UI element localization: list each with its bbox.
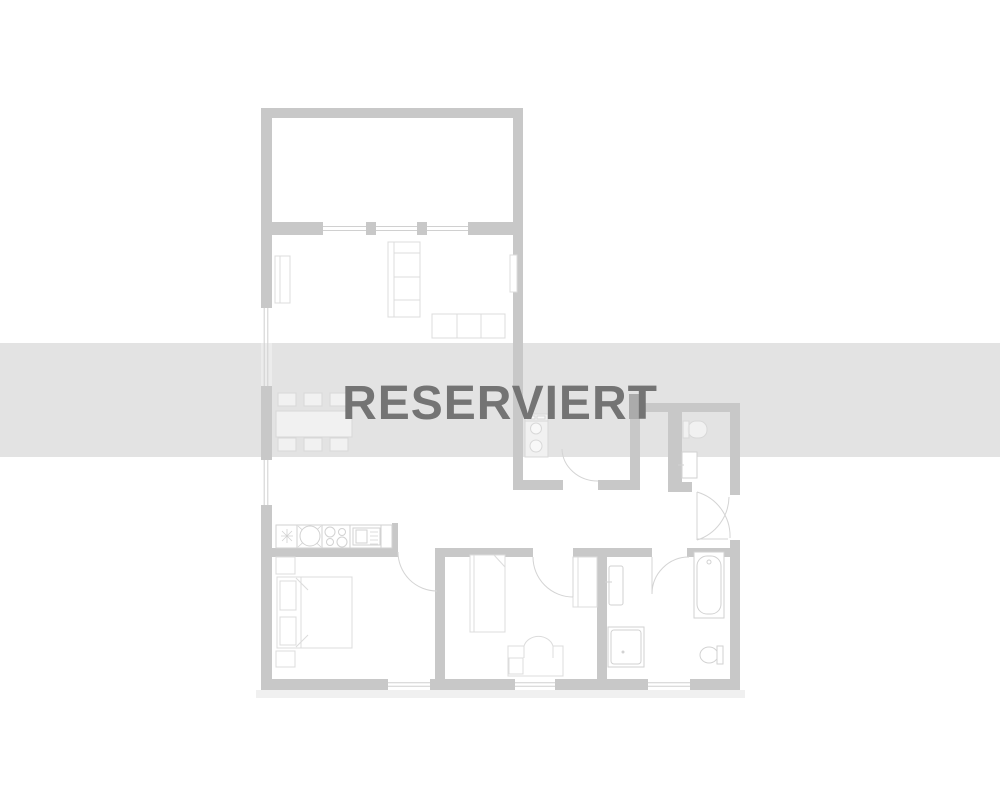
bathroom-sink bbox=[609, 566, 623, 605]
wall bbox=[417, 222, 427, 235]
toilet bbox=[700, 647, 718, 663]
wall bbox=[607, 548, 652, 557]
wall bbox=[668, 412, 682, 482]
stove-burner bbox=[530, 440, 542, 452]
bedroom-door-arc bbox=[398, 552, 437, 591]
wall bbox=[261, 548, 398, 557]
window bbox=[515, 679, 555, 690]
wall bbox=[261, 235, 272, 308]
toilet-tank bbox=[717, 646, 723, 664]
shower-drain bbox=[622, 651, 625, 654]
window bbox=[648, 679, 690, 690]
wall bbox=[261, 386, 272, 460]
bathtub bbox=[694, 552, 724, 618]
wall bbox=[555, 679, 648, 690]
sofa bbox=[432, 314, 505, 338]
wall bbox=[668, 482, 692, 492]
window bbox=[323, 222, 366, 235]
nightstand bbox=[276, 557, 295, 574]
wall bbox=[597, 548, 607, 690]
wall bbox=[468, 222, 523, 235]
floor-plan-page: RESERVIERT bbox=[0, 0, 1000, 795]
floor-plan-image: RESERVIERT bbox=[0, 0, 1000, 795]
bathroom-door bbox=[652, 557, 689, 594]
chair bbox=[330, 438, 348, 451]
wall bbox=[513, 108, 523, 235]
wall bbox=[261, 679, 388, 690]
radiator bbox=[510, 255, 517, 292]
chair bbox=[304, 393, 322, 406]
wall bbox=[730, 412, 740, 495]
entrance-door-leaves bbox=[697, 492, 728, 540]
wall bbox=[392, 523, 398, 557]
plan-shadow bbox=[256, 690, 745, 698]
wall bbox=[261, 505, 272, 690]
chair bbox=[304, 438, 322, 451]
wall bbox=[430, 679, 515, 690]
wall bbox=[366, 222, 376, 235]
wall bbox=[261, 222, 323, 235]
wardrobe bbox=[573, 557, 597, 607]
wall bbox=[261, 108, 272, 235]
entrance-door-arc bbox=[697, 497, 729, 540]
wc-toilet-tank bbox=[683, 421, 689, 438]
dining-table bbox=[276, 411, 352, 437]
chair bbox=[278, 393, 296, 406]
window bbox=[376, 222, 417, 235]
wall bbox=[435, 548, 445, 690]
window bbox=[427, 222, 468, 235]
wc-sink bbox=[682, 452, 697, 478]
wc-toilet bbox=[688, 421, 707, 438]
wall bbox=[513, 480, 563, 490]
window bbox=[388, 679, 430, 690]
wall bbox=[261, 108, 523, 118]
shelf bbox=[275, 256, 290, 303]
single-bed bbox=[470, 555, 505, 632]
kitchen-sink bbox=[300, 526, 320, 546]
window bbox=[261, 343, 272, 386]
window bbox=[261, 308, 272, 343]
wall bbox=[690, 679, 740, 690]
kids-room-door bbox=[533, 557, 573, 597]
nightstand bbox=[276, 651, 295, 667]
double-bed bbox=[277, 577, 352, 648]
wall bbox=[730, 540, 740, 690]
shower bbox=[608, 627, 644, 667]
reserved-label: RESERVIERT bbox=[342, 377, 658, 430]
desk-chair bbox=[524, 636, 553, 658]
chair bbox=[278, 438, 296, 451]
window bbox=[261, 460, 272, 505]
